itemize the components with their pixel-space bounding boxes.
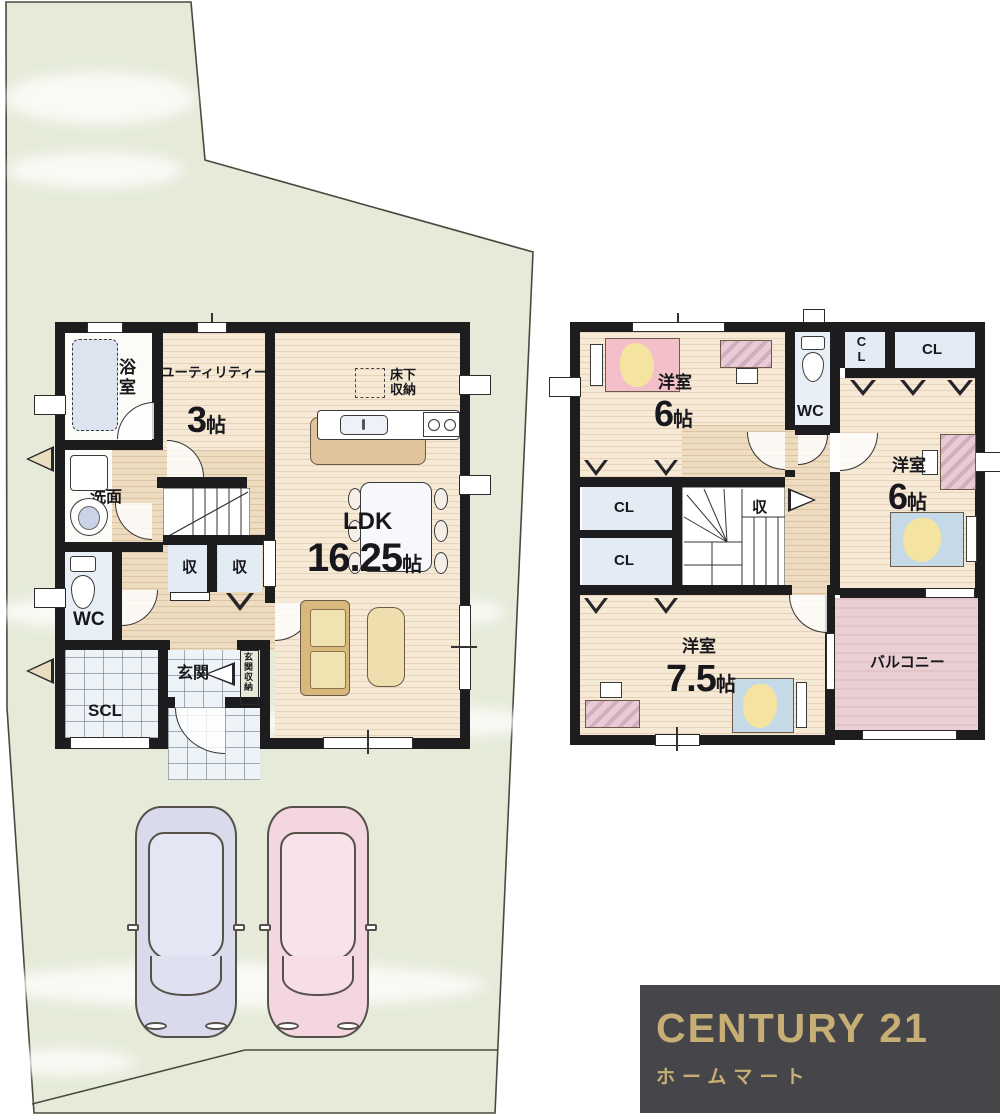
sofa-cushion	[310, 609, 346, 647]
car-windshield	[150, 956, 222, 996]
wall	[158, 640, 168, 749]
car-right	[267, 806, 369, 1038]
wall	[830, 472, 840, 595]
entrance-storage-box	[240, 650, 259, 705]
underfloor-storage-label-line2: 収納	[390, 383, 416, 396]
wall	[207, 545, 217, 592]
bed-blanket	[620, 343, 654, 387]
utility-size: 3帖	[187, 402, 226, 438]
bedroom3-size-unit: 帖	[716, 674, 736, 696]
storage-b-label: 収	[232, 560, 247, 575]
balcony-opening	[862, 730, 957, 740]
bedroom1-size: 6帖	[654, 396, 693, 432]
wall	[157, 477, 247, 488]
window	[197, 322, 227, 333]
sofa-cushion	[310, 651, 346, 689]
bedroom3-label: 洋室	[682, 638, 716, 655]
entrance-label: 玄関	[177, 666, 209, 682]
wall	[672, 487, 682, 585]
awning-window	[34, 395, 66, 415]
stairs-second-floor	[682, 487, 785, 587]
utility-size-number: 3	[187, 399, 206, 440]
underfloor-storage-label-line1: 床下	[390, 368, 416, 381]
car-mirror-icon	[259, 924, 271, 931]
wall	[978, 588, 985, 740]
century21-brand-text: CENTURY 21	[656, 1005, 1000, 1052]
stairs-first-floor	[163, 488, 250, 542]
bed-footboard	[966, 516, 977, 562]
bedroom2-size-unit: 帖	[907, 492, 927, 514]
wc-label: WC	[73, 610, 105, 629]
bedroom2-label: 洋室	[892, 457, 926, 474]
storage-a-label: 収	[182, 560, 197, 575]
wall	[580, 477, 785, 487]
desk	[720, 340, 772, 368]
balcony-label: バルコニー	[870, 655, 945, 670]
ldk-size-unit: 帖	[402, 554, 422, 576]
desk-chair	[600, 682, 622, 698]
window-tick	[211, 313, 213, 322]
ldk-size: 16.25帖	[307, 538, 422, 578]
dining-chair	[434, 520, 448, 542]
bedroom1-label: 洋室	[658, 374, 692, 391]
scl-label: SCL	[88, 702, 122, 719]
bed-headboard	[590, 344, 603, 386]
ldk-size-number: 16.25	[307, 536, 402, 580]
wall	[580, 530, 682, 538]
bed-blanket	[743, 684, 777, 728]
ottoman	[367, 607, 405, 687]
bedroom1-size-unit: 帖	[673, 409, 693, 431]
wc2-window	[803, 309, 825, 323]
stove-burner-icon	[444, 419, 456, 431]
desk-chair	[736, 368, 758, 384]
window-tick	[367, 730, 369, 754]
awning-window	[459, 375, 491, 395]
car-headlight-icon	[277, 1022, 299, 1030]
floorplan-page: 浴室 ユーティリティー 3帖 洗面 WC 収 収 玄関 玄関収納 SCL LDK…	[0, 0, 1000, 1115]
utility-label: ユーティリティー	[161, 366, 267, 380]
kitchen-faucet-icon	[362, 419, 365, 430]
sliding-door	[263, 540, 276, 587]
window	[70, 737, 150, 749]
closet-mid-label: CL	[614, 500, 634, 515]
wall	[785, 332, 795, 430]
desk	[940, 434, 976, 490]
bedroom3-size-number: 7.5	[666, 658, 716, 700]
wall	[885, 332, 895, 368]
wall	[795, 425, 830, 435]
sofa	[300, 600, 350, 696]
awning-window	[974, 452, 1000, 472]
awning-window	[34, 588, 66, 608]
car-mirror-icon	[233, 924, 245, 931]
balcony-door-window	[826, 633, 835, 690]
bed	[732, 678, 794, 733]
wall	[785, 470, 795, 477]
scl-floor	[65, 648, 158, 738]
storage2-label: 収	[752, 500, 767, 515]
wall	[570, 735, 835, 745]
wall	[65, 640, 170, 650]
century21-subtitle-text: ホームマート	[656, 1062, 1000, 1089]
washer-icon	[70, 455, 108, 491]
wall	[65, 440, 163, 450]
wall	[65, 542, 163, 552]
century21-logo: CENTURY 21 ホームマート	[640, 985, 1000, 1113]
wall	[237, 640, 270, 650]
wall	[580, 585, 792, 595]
car-left	[135, 806, 237, 1038]
closet-top-label: CL	[922, 342, 942, 357]
car-mirror-icon	[127, 924, 139, 931]
wall	[830, 332, 840, 433]
sink-bowl-icon	[78, 506, 100, 530]
wc2-label: WC	[797, 404, 824, 420]
window-tick	[676, 727, 678, 751]
awning-window	[459, 475, 491, 495]
car-headlight-icon	[337, 1022, 359, 1030]
wall	[55, 322, 65, 749]
dining-chair	[434, 488, 448, 510]
window-tick	[677, 313, 679, 322]
car-windshield	[282, 956, 354, 996]
wall	[112, 552, 122, 650]
bedroom2-size-number: 6	[888, 476, 907, 517]
bathroom-label: 浴室	[117, 358, 134, 398]
wall	[845, 368, 975, 378]
wall	[827, 585, 840, 595]
car-roof	[280, 832, 356, 960]
kitchen-stove	[423, 412, 460, 437]
car-headlight-icon	[145, 1022, 167, 1030]
window	[87, 322, 123, 333]
desk	[585, 700, 640, 728]
bed-blanket	[903, 518, 941, 562]
closet-small-label: CL	[855, 334, 868, 364]
bedroom1-size-number: 6	[654, 393, 673, 434]
car-roof	[148, 832, 224, 960]
ldk-label: LDK	[343, 510, 392, 534]
closet-sliding-door	[170, 592, 210, 601]
toilet-icon	[801, 336, 825, 350]
stove-burner-icon	[428, 419, 440, 431]
bed-footboard	[796, 682, 807, 728]
closet-low-label: CL	[614, 553, 634, 568]
utility-size-unit: 帖	[206, 415, 226, 437]
car-headlight-icon	[205, 1022, 227, 1030]
wall	[840, 332, 845, 368]
toilet-icon	[70, 556, 96, 572]
wall	[163, 535, 273, 545]
second-floor-plan: 洋室 6帖 WC CL CL 洋室 6帖 CL CL 収 洋室 7.5帖 バルコ…	[570, 322, 985, 745]
window-tick	[451, 646, 477, 648]
wall	[260, 640, 270, 749]
bedroom3-size: 7.5帖	[666, 660, 736, 698]
underfloor-storage-box	[355, 368, 385, 398]
bedroom2-size: 6帖	[888, 479, 927, 515]
car-mirror-icon	[365, 924, 377, 931]
balcony-door-window	[925, 588, 975, 598]
dining-chair	[434, 552, 448, 574]
bed	[890, 512, 964, 567]
window	[632, 322, 725, 332]
awning-window	[549, 377, 581, 397]
bathtub-icon	[72, 339, 118, 431]
